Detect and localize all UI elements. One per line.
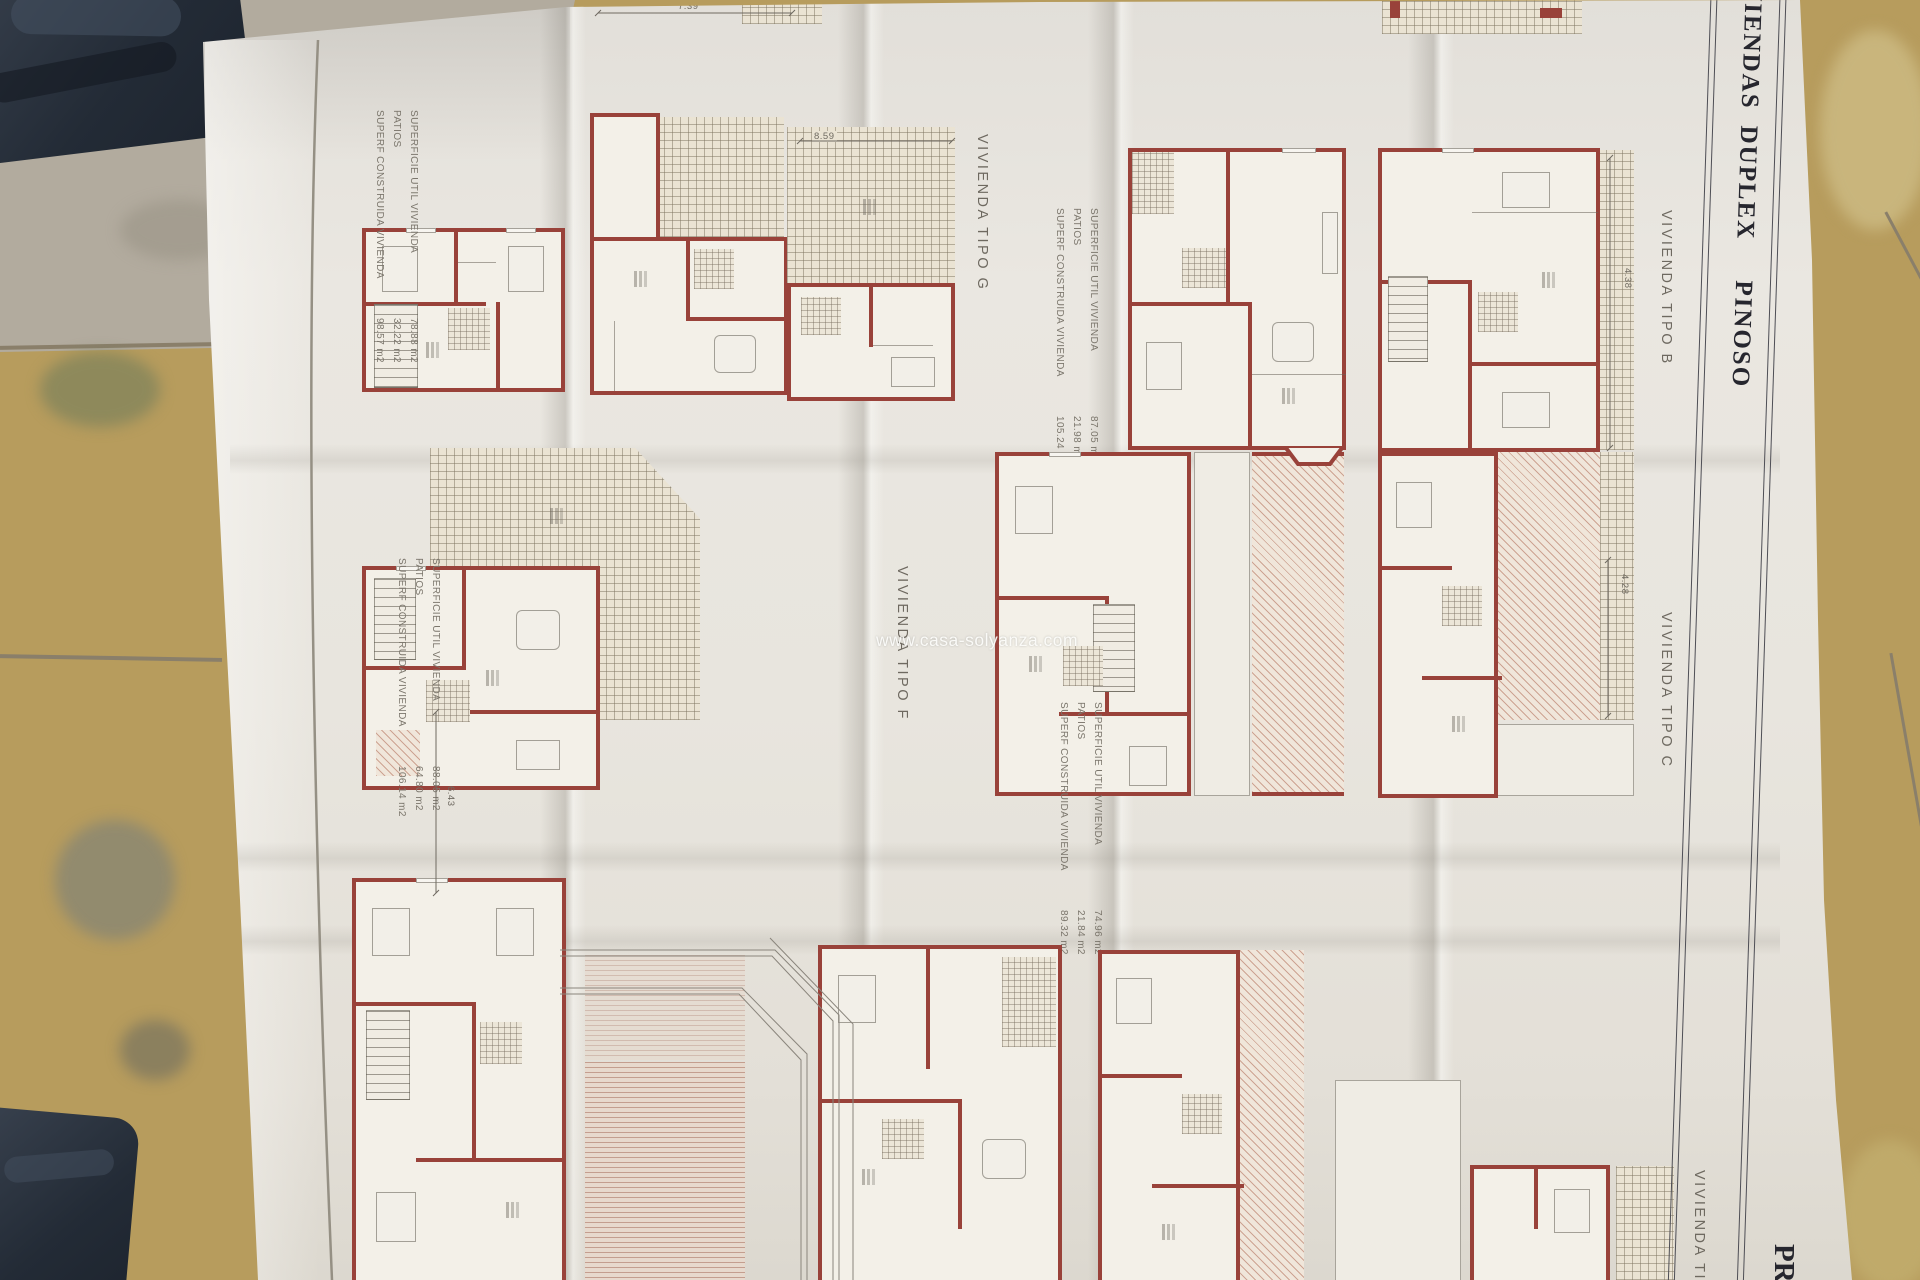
bed-mark xyxy=(1502,392,1550,428)
table-mark xyxy=(1272,322,1314,362)
plan-label-tipo-g: VIVIENDA TIPO G xyxy=(974,134,990,291)
window-mark xyxy=(416,878,448,883)
bed-mark xyxy=(1116,978,1152,1024)
desk-mark xyxy=(891,357,935,387)
room-label-mark xyxy=(506,1202,509,1218)
bed-mark xyxy=(838,975,876,1023)
room-label-mark xyxy=(863,199,866,215)
room-label-mark xyxy=(486,670,489,686)
room-label-mark xyxy=(1452,716,1455,732)
window-mark xyxy=(506,228,536,233)
plan-tipo-b-upper-floor xyxy=(1378,148,1634,452)
dimension-label: 4.38 xyxy=(1622,268,1633,289)
room-label-mark xyxy=(426,342,429,358)
dimension-label: 7.39 xyxy=(678,1,699,12)
dimension-label: 4.28 xyxy=(1619,574,1630,595)
bed-mark xyxy=(496,908,534,956)
plan-tipo-c-ground-floor xyxy=(1378,452,1634,798)
floor-stain xyxy=(55,820,175,940)
plan-tipo-g-lower-right xyxy=(787,127,955,401)
bed-mark xyxy=(1502,172,1550,208)
plan-sliver-terrace xyxy=(742,0,822,24)
room-label-mark xyxy=(550,508,553,524)
bed-mark xyxy=(372,908,410,956)
bed-mark xyxy=(1146,342,1182,390)
plan-sliver-terrace xyxy=(1382,0,1582,34)
table-mark xyxy=(516,610,560,650)
floor-stain xyxy=(40,352,160,427)
floor-highlight xyxy=(1820,30,1920,230)
bed-mark xyxy=(376,1192,416,1242)
bed-mark xyxy=(508,246,544,292)
room-label-mark xyxy=(862,1169,865,1185)
fold-crease-horizontal xyxy=(230,842,1780,872)
plan-bottom-left xyxy=(352,878,566,1280)
tile-grout xyxy=(1884,211,1920,371)
sheet-title-bottom-fragment: PR xyxy=(1767,1244,1800,1280)
dimension-label: 8.59 xyxy=(812,131,837,142)
plan-tipo-g-lower-left xyxy=(590,113,788,395)
room-label-mark xyxy=(1282,388,1285,404)
floor-stain xyxy=(120,1020,190,1080)
table-mark xyxy=(714,335,756,373)
room-label-mark xyxy=(1542,272,1545,288)
floor-highlight xyxy=(1840,1140,1920,1280)
dimension-label: 6.43 xyxy=(445,786,456,807)
website-watermark: www.casa-solyanza.com xyxy=(876,630,1078,651)
tile-grout xyxy=(1889,653,1920,870)
plan-label-tipo-b: VIVIENDA TIPO B xyxy=(1658,210,1674,366)
bed-mark xyxy=(1554,1189,1590,1233)
sheet-title-text: VIVIENDASDUPLEXPINOSO xyxy=(1725,0,1767,389)
plan-roof-hatch xyxy=(585,955,745,1060)
window-mark xyxy=(1442,148,1474,153)
plan-bottom-far-terrace xyxy=(1616,1166,1674,1280)
table-mark xyxy=(982,1139,1026,1179)
plan-tipo-c-patio-hatch xyxy=(1252,452,1344,796)
area-table-tipo-c: SUPERFICIE UTIL VIVIENDA74.96 m2 PATIOS2… xyxy=(1055,702,1106,955)
window-mark xyxy=(1282,148,1316,153)
plan-tipo-b-ground-floor xyxy=(1128,148,1346,450)
tile-grout xyxy=(0,654,222,662)
sheet-title-band: VIVIENDASDUPLEXPINOSO xyxy=(1666,0,1788,1280)
band-border-line xyxy=(1672,0,1719,1280)
desk-mark xyxy=(516,740,560,770)
bed-mark xyxy=(1015,486,1053,534)
plan-bottom-middle xyxy=(818,945,1062,1280)
area-table-tipo-f: SUPERFICIE UTIL VIVIENDA88.05 m2 PATIOS6… xyxy=(393,558,444,817)
room-label-mark xyxy=(634,271,637,287)
bed-mark xyxy=(1396,482,1432,528)
plan-roof-hatch xyxy=(585,1062,745,1280)
bed-mark xyxy=(1129,746,1167,786)
area-table-tipo-g: SUPERFICIE UTIL VIVIENDA78.88 m2 PATIOS3… xyxy=(371,110,422,363)
plan-label-tipo-c: VIVIENDA TIPO C xyxy=(1658,612,1674,769)
photo-of-floorplan-sheet: 7.39 xyxy=(0,0,1920,1280)
area-table-tipo-b: SUPERFICIE UTIL VIVIENDA87.05 m2 PATIOS2… xyxy=(1051,208,1102,467)
plan-tipo-c-patio xyxy=(1194,452,1250,796)
plan-bottom-far-patio xyxy=(1335,1080,1461,1280)
plan-bottom-far-rooms xyxy=(1470,1165,1610,1280)
plan-bottom-right xyxy=(1098,950,1304,1280)
room-label-mark xyxy=(1162,1224,1165,1240)
dark-object-bottom-left xyxy=(0,1105,140,1280)
sofa-mark xyxy=(1322,212,1338,274)
window-mark xyxy=(1049,452,1081,457)
room-label-mark xyxy=(1029,656,1032,672)
